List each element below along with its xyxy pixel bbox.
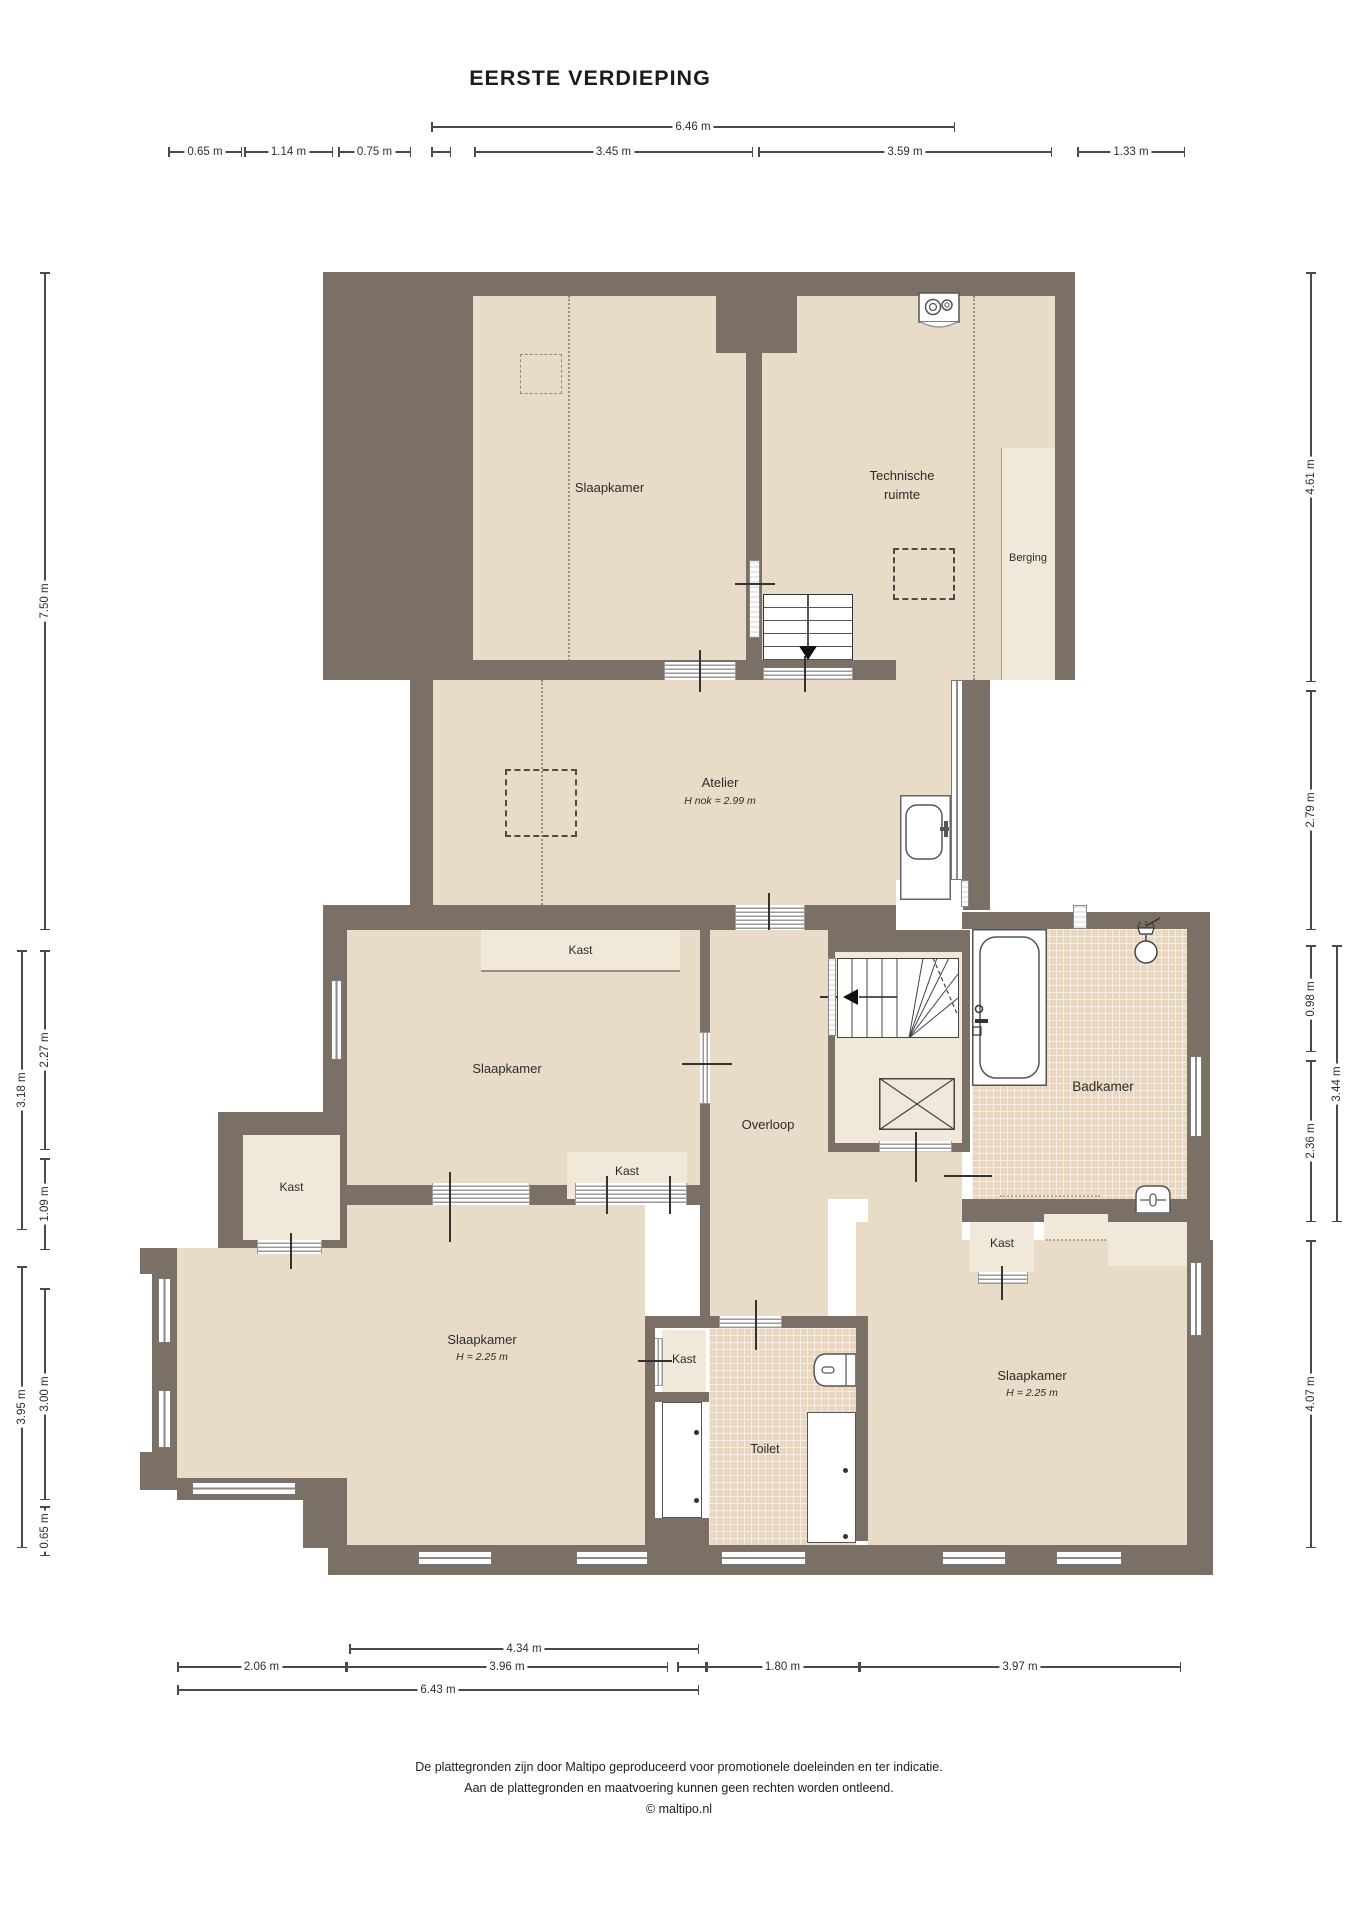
dimension-segment: 3.97 m: [859, 1653, 1181, 1681]
dimension-line: [346, 1662, 348, 1672]
door-swing-tick: [606, 1176, 608, 1214]
room-floor-slaapkamer-linksonder: [177, 1248, 347, 1478]
dimension-segment: 3.44 m: [1323, 945, 1351, 1222]
dimension-line: [1306, 945, 1316, 947]
window: [942, 1551, 1006, 1565]
dimension-segment: 2.79 m: [1297, 690, 1325, 930]
dimension-line: [450, 147, 452, 157]
room-label-atelier: Atelier: [620, 774, 820, 793]
dimension-line: [758, 147, 760, 157]
dimension-line: [859, 1662, 861, 1672]
dimension-label: 4.61 m: [1305, 456, 1317, 497]
window: [576, 1551, 648, 1565]
dimension-line: [1306, 929, 1316, 931]
footer-copyright: © maltipo.nl: [0, 1802, 1358, 1816]
wall: [963, 680, 990, 910]
floor-plan-page: EERSTE VERDIEPING Slaapkamer Technische …: [0, 0, 1358, 1920]
room-floor-atelier: [433, 880, 896, 905]
glass-partition: [828, 958, 836, 1036]
dimension-line: [698, 1685, 700, 1695]
dimension-line: [954, 122, 956, 132]
dimension-line: [168, 147, 170, 157]
dimension-line: [410, 147, 412, 157]
dimension-line: [1306, 690, 1316, 692]
window: [331, 980, 342, 1060]
dimension-label: 6.43 m: [417, 1684, 458, 1696]
dimension-label: 3.95 m: [16, 1386, 28, 1427]
dimension-line: [17, 1266, 27, 1268]
dimension-line: [17, 1547, 27, 1549]
dimension-segment: [431, 138, 451, 166]
door-threshold: [763, 668, 853, 680]
window: [158, 1390, 171, 1448]
stair-direction-arrow-icon: [799, 646, 817, 660]
room-floor-overloop: [828, 1152, 962, 1199]
dimension-line: [332, 147, 334, 157]
door-swing-tick: [699, 650, 701, 692]
footer-disclaimer-line1: De plattegronden zijn door Maltipo gepro…: [0, 1760, 1358, 1774]
dormer-dashed-outline: [505, 769, 577, 837]
wall: [303, 1478, 347, 1548]
dimension-line: [431, 147, 433, 157]
dimension-segment: 6.46 m: [431, 113, 955, 141]
window-wall: [951, 680, 963, 880]
door-swing-tick: [1001, 1266, 1003, 1300]
closet-door-threshold: [655, 1338, 663, 1386]
room-floor-slaapkamer-linksonder: [347, 1205, 645, 1545]
wall: [645, 1328, 655, 1555]
dimension-line: [1077, 147, 1079, 157]
dimension-segment: 1.09 m: [31, 1158, 59, 1250]
room-label-slaapkamer-linksonder: Slaapkamer: [322, 1331, 642, 1350]
window: [158, 1278, 171, 1343]
door-swing-tick: [669, 1176, 671, 1214]
dimension-line: [1306, 681, 1316, 683]
dimension-label: 1.33 m: [1110, 146, 1151, 158]
dimension-line: [40, 1149, 50, 1151]
room-label-technische-ruimte: Technische ruimte: [856, 467, 948, 505]
room-label-berging: Berging: [996, 552, 1060, 564]
door-swing-tick: [449, 1172, 451, 1242]
closet-door-threshold: [978, 1272, 1028, 1284]
window: [1073, 905, 1087, 929]
door-swing-tick: [290, 1233, 292, 1269]
dimension-line: [1306, 272, 1316, 274]
dimension-segment: 1.33 m: [1077, 138, 1185, 166]
closet-label: Kast: [658, 1352, 710, 1366]
dimension-line: [40, 1499, 50, 1501]
dimension-label: 0.65 m: [184, 146, 225, 158]
dimension-line: [244, 147, 246, 157]
door-threshold: [735, 905, 805, 930]
dimension-segment: 4.07 m: [1297, 1240, 1325, 1548]
dimension-label: 0.65 m: [39, 1510, 51, 1551]
window: [1190, 1262, 1202, 1336]
dimension-line: [1332, 1221, 1342, 1223]
room-label-slaapkamer-rechtsonder: Slaapkamer: [872, 1367, 1192, 1386]
cabinet-panel: [807, 1412, 856, 1543]
dimension-label: 7.50 m: [39, 580, 51, 621]
window: [192, 1482, 296, 1495]
closet-label: Kast: [243, 1180, 340, 1194]
dimension-line: [338, 147, 340, 157]
dimension-label: 0.98 m: [1305, 978, 1317, 1019]
dimension-label: 1.80 m: [762, 1661, 803, 1673]
dimension-line: [1184, 147, 1186, 157]
page-title: EERSTE VERDIEPING: [390, 66, 790, 91]
floor-transition-dotted: [1046, 1239, 1106, 1241]
closet-label: Kast: [962, 1236, 1042, 1250]
room-label-badkamer: Badkamer: [1013, 1077, 1193, 1097]
room-height-note: H = 2.25 m: [322, 1351, 642, 1363]
dimension-line: [177, 1662, 179, 1672]
wall: [140, 1452, 152, 1490]
stair-direction-arrow-icon: [843, 989, 858, 1005]
dimension-line: [40, 1555, 50, 1557]
dimension-label: 0.75 m: [354, 146, 395, 158]
dimension-segment: 3.59 m: [758, 138, 1052, 166]
closet-label: Kast: [567, 1164, 687, 1178]
roof-ridge-line: [973, 296, 975, 680]
dimension-segment: 4.61 m: [1297, 272, 1325, 682]
hinge-dot: [694, 1430, 699, 1435]
window: [721, 1551, 806, 1565]
dimension-segment: 0.75 m: [338, 138, 411, 166]
door-threshold: [432, 1183, 530, 1205]
dimension-label: 2.36 m: [1305, 1120, 1317, 1161]
window: [961, 880, 969, 907]
dimension-segment: 0.65 m: [31, 1506, 59, 1556]
door-swing-tick: [915, 1132, 917, 1182]
dimension-label: 3.96 m: [486, 1661, 527, 1673]
dimension-line: [752, 147, 754, 157]
room-label-slaapkamer-boven: Slaapkamer: [473, 479, 746, 498]
closet-floor: [1044, 1214, 1108, 1240]
dimension-line: [1306, 1051, 1316, 1053]
closet-label: Kast: [481, 943, 680, 957]
dimension-line: [40, 1506, 50, 1508]
door-threshold: [719, 1316, 782, 1328]
hatch-dashed-outline: [893, 548, 955, 600]
wall: [856, 1328, 868, 1541]
dimension-line: [1306, 1240, 1316, 1242]
shower-icon: [1126, 914, 1170, 968]
dimension-line: [40, 1158, 50, 1160]
toilet-icon: [1133, 1184, 1173, 1213]
dimension-segment: 1.80 m: [706, 1653, 859, 1681]
dimension-label: 3.97 m: [999, 1661, 1040, 1673]
door-swing-tick: [755, 1300, 757, 1350]
dimension-line: [1306, 1547, 1316, 1549]
dimension-line: [17, 1229, 27, 1231]
dimension-line: [667, 1662, 669, 1672]
dimension-label: 3.44 m: [1331, 1063, 1343, 1104]
dimension-line: [17, 950, 27, 952]
hinge-dot: [694, 1498, 699, 1503]
door-swing-tick: [638, 1360, 672, 1362]
dimension-line: [40, 1288, 50, 1290]
bathtub-icon: [972, 929, 1047, 1086]
room-floor-slaapkamer-rechtsonder: [856, 1222, 868, 1316]
dimension-line: [431, 151, 451, 153]
floor-transition-dotted: [1000, 1195, 1100, 1197]
dimension-label: 2.06 m: [241, 1661, 282, 1673]
dimension-label: 2.27 m: [39, 1029, 51, 1070]
dimension-line: [241, 147, 243, 157]
dimension-segment: 3.45 m: [474, 138, 753, 166]
skylight-dashed-outline: [520, 354, 562, 394]
dimension-segment: 0.98 m: [1297, 945, 1325, 1052]
room-floor-berging: [1001, 448, 1055, 680]
wall: [655, 1518, 709, 1545]
door-swing-tick: [735, 583, 775, 585]
dimension-segment: 7.50 m: [31, 272, 59, 930]
footer-disclaimer-line2: Aan de plattegronden en maatvoering kunn…: [0, 1781, 1358, 1795]
dimension-line: [431, 122, 433, 132]
room-floor-overloop: [868, 1199, 962, 1240]
window: [1056, 1551, 1122, 1565]
dimension-label: 3.45 m: [593, 146, 634, 158]
door-threshold: [700, 1032, 710, 1104]
dimension-line: [40, 1249, 50, 1251]
room-label-slaapkamer-midden: Slaapkamer: [347, 1060, 667, 1079]
void-shaft-icon: [879, 1078, 955, 1130]
room-label-overloop: Overloop: [700, 1116, 836, 1135]
closet-floor: [1108, 1222, 1187, 1266]
boiler-icon: [918, 292, 960, 330]
dimension-segment: 0.65 m: [168, 138, 242, 166]
dimension-line: [1306, 1060, 1316, 1062]
wall: [323, 905, 710, 930]
hinge-dot: [843, 1534, 848, 1539]
dimension-line: [177, 1685, 179, 1695]
door-swing-tick: [682, 1063, 732, 1065]
dimension-line: [40, 929, 50, 931]
dimension-line: [677, 1666, 706, 1668]
dimension-label: 6.46 m: [672, 121, 713, 133]
door-swing-tick: [944, 1175, 992, 1177]
dimension-line: [1306, 1221, 1316, 1223]
dimension-line: [40, 272, 50, 274]
dimension-line: [706, 1662, 708, 1672]
dimension-line: [1051, 147, 1053, 157]
dimension-label: 4.07 m: [1305, 1373, 1317, 1414]
door-swing-tick: [804, 656, 806, 692]
dimension-segment: 1.14 m: [244, 138, 333, 166]
dimension-segment: 2.36 m: [1297, 1060, 1325, 1222]
dimension-segment: 6.43 m: [177, 1676, 699, 1704]
dimension-label: 2.79 m: [1305, 789, 1317, 830]
dimension-line: [677, 1662, 679, 1672]
glass-partition: [749, 560, 760, 638]
dimension-label: 1.09 m: [39, 1183, 51, 1224]
dimension-line: [1180, 1662, 1182, 1672]
wall: [140, 1248, 152, 1274]
dimension-label: 3.18 m: [16, 1069, 28, 1110]
dimension-line: [1332, 945, 1342, 947]
room-height-note-atelier: H nok = 2.99 m: [620, 795, 820, 807]
room-height-note: H = 2.25 m: [872, 1387, 1192, 1399]
hinge-dot: [843, 1468, 848, 1473]
window: [418, 1551, 492, 1565]
dimension-label: 1.14 m: [268, 146, 309, 158]
dimension-label: 3.59 m: [884, 146, 925, 158]
sink-icon: [900, 795, 951, 900]
toilet-icon: [810, 1350, 856, 1390]
wall-chimney-notch: [716, 272, 797, 353]
dimension-label: 3.00 m: [39, 1373, 51, 1414]
dimension-line: [474, 147, 476, 157]
wall: [655, 1392, 709, 1402]
dimension-line: [40, 950, 50, 952]
